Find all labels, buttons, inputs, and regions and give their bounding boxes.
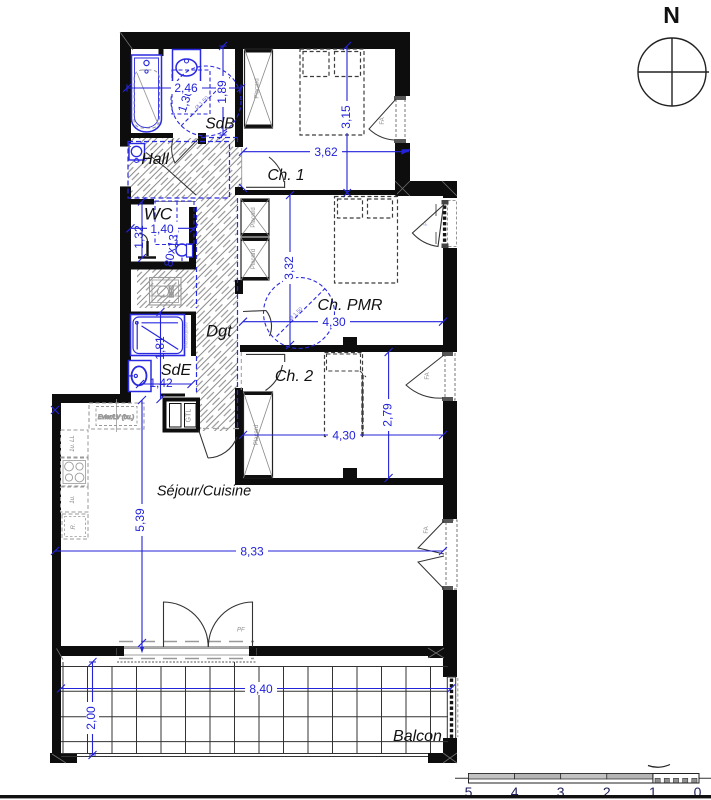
svg-text:SdE: SdE	[161, 362, 192, 379]
svg-text:2,46: 2,46	[174, 81, 198, 95]
svg-text:Placard: Placard	[251, 249, 257, 269]
svg-text:GTL: GTL	[186, 409, 193, 423]
svg-text:Moustiquaire: Moustiquaire	[184, 322, 189, 348]
svg-text:Ch. 2: Ch. 2	[275, 368, 313, 385]
svg-text:1,81: 1,81	[153, 336, 167, 360]
svg-text:WC: WC	[144, 205, 173, 224]
svg-text:FA: FA	[424, 526, 430, 533]
svg-text:R.: R.	[71, 524, 77, 530]
svg-text:Placard: Placard	[255, 78, 261, 98]
svg-text:N: N	[663, 2, 680, 28]
svg-text:2,00: 2,00	[84, 706, 98, 730]
svg-text:Séjour/Cuisine: Séjour/Cuisine	[157, 484, 251, 500]
svg-text:1u.: 1u.	[70, 495, 76, 503]
svg-text:BEC: BEC	[170, 285, 176, 298]
svg-text:PF: PF	[237, 628, 245, 634]
svg-text:Placard: Placard	[251, 207, 257, 227]
svg-text:3,62: 3,62	[314, 145, 338, 159]
svg-text:Ch. 1: Ch. 1	[267, 167, 304, 184]
svg-text:2,79: 2,79	[381, 403, 395, 427]
svg-text:8,40: 8,40	[249, 682, 273, 696]
svg-text:3,32: 3,32	[282, 256, 296, 280]
svg-text:Dgt: Dgt	[206, 323, 233, 341]
svg-text:4,30: 4,30	[322, 315, 346, 329]
svg-text:FA: FA	[425, 372, 431, 379]
svg-text:Hall: Hall	[141, 151, 169, 168]
svg-text:FA: FA	[380, 117, 386, 124]
svg-text:3,15: 3,15	[339, 105, 353, 129]
svg-text:1u. LL: 1u. LL	[70, 435, 76, 452]
svg-text:1,40: 1,40	[150, 222, 174, 236]
svg-text:SdB: SdB	[205, 116, 234, 133]
svg-text:Ch. PMR: Ch. PMR	[318, 297, 383, 314]
svg-text:8,33: 8,33	[240, 545, 264, 559]
svg-text:5,39: 5,39	[133, 508, 147, 532]
svg-text:1,89: 1,89	[215, 80, 229, 104]
svg-text:Balcon: Balcon	[393, 728, 442, 745]
svg-text:4,30: 4,30	[332, 429, 356, 443]
svg-text:Evier/LV (bu.): Evier/LV (bu.)	[98, 415, 134, 421]
